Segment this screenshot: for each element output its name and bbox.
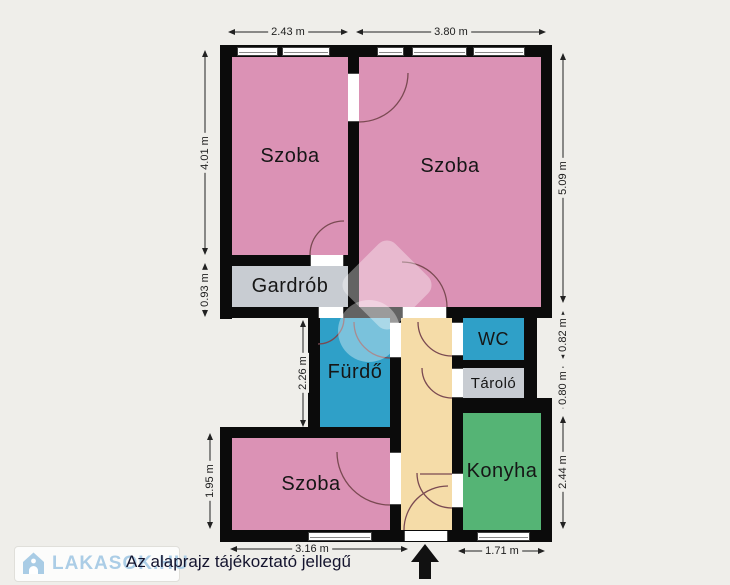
floorplan-canvas: Szoba Szoba Gardrób Fürdő WC Tároló Kony…	[0, 0, 730, 585]
wall	[524, 307, 537, 413]
door-opening	[452, 322, 463, 356]
wall	[220, 45, 232, 319]
room-label-tarolo: Tároló	[471, 375, 517, 392]
wall	[308, 307, 320, 438]
dimension-label-top-szoba-right: 3.80 m	[431, 26, 471, 38]
dimension-label-right-konyha: 2.44 m	[557, 452, 569, 492]
room-wc: WC	[463, 318, 524, 360]
dimension-label-right-wc: 0.82 m	[557, 315, 569, 355]
room-label-gardrob: Gardrób	[252, 275, 329, 298]
window	[473, 47, 525, 56]
window	[412, 47, 467, 56]
window	[308, 532, 372, 541]
wall	[220, 427, 232, 542]
wall	[452, 398, 552, 413]
door-opening	[452, 473, 463, 508]
door-opening	[348, 73, 359, 122]
door-opening	[318, 307, 344, 318]
house-icon	[20, 550, 47, 577]
dimension-label-left-szoba: 4.01 m	[199, 133, 211, 173]
dimension-label-top-szoba: 2.43 m	[268, 26, 308, 38]
disclaimer-text: Az alaprajz tájékoztató jellegű	[126, 552, 351, 572]
room-label-furdo: Fürdő	[328, 361, 383, 384]
room-label-szoba-top-right: Szoba	[420, 155, 479, 178]
door-opening	[310, 255, 344, 266]
room-hallway	[401, 318, 452, 530]
room-label-konyha: Konyha	[467, 460, 538, 483]
room-konyha: Konyha	[463, 413, 541, 530]
dimension-label-right-tarolo: 0.80 m	[557, 368, 569, 408]
window	[282, 47, 330, 56]
wall	[541, 45, 552, 318]
dimension-label-bottom-konyha: 1.71 m	[482, 545, 522, 557]
entrance-door	[404, 531, 448, 541]
room-label-szoba-top-left: Szoba	[260, 145, 319, 168]
door-opening	[390, 452, 401, 505]
wall	[220, 427, 401, 438]
dimension-label-right-szoba: 5.09 m	[557, 158, 569, 198]
watermark-icon	[338, 300, 400, 362]
room-gardrob: Gardrób	[232, 266, 348, 307]
room-szoba-bottom: Szoba	[232, 438, 390, 530]
room-label-wc: WC	[478, 329, 509, 350]
room-szoba-top-left: Szoba	[232, 57, 348, 255]
dimension-label-left-szoba-bottom: 1.95 m	[204, 461, 216, 501]
room-label-szoba-bottom: Szoba	[281, 473, 340, 496]
entrance-arrow-icon	[411, 544, 439, 579]
window	[477, 532, 530, 541]
window	[377, 47, 404, 56]
dimension-label-left-gardrob: 0.93 m	[199, 270, 211, 310]
window	[237, 47, 278, 56]
dimension-label-left-furdo: 2.26 m	[297, 353, 309, 393]
room-tarolo: Tároló	[463, 368, 524, 398]
wall	[541, 398, 552, 542]
door-opening	[452, 368, 463, 398]
